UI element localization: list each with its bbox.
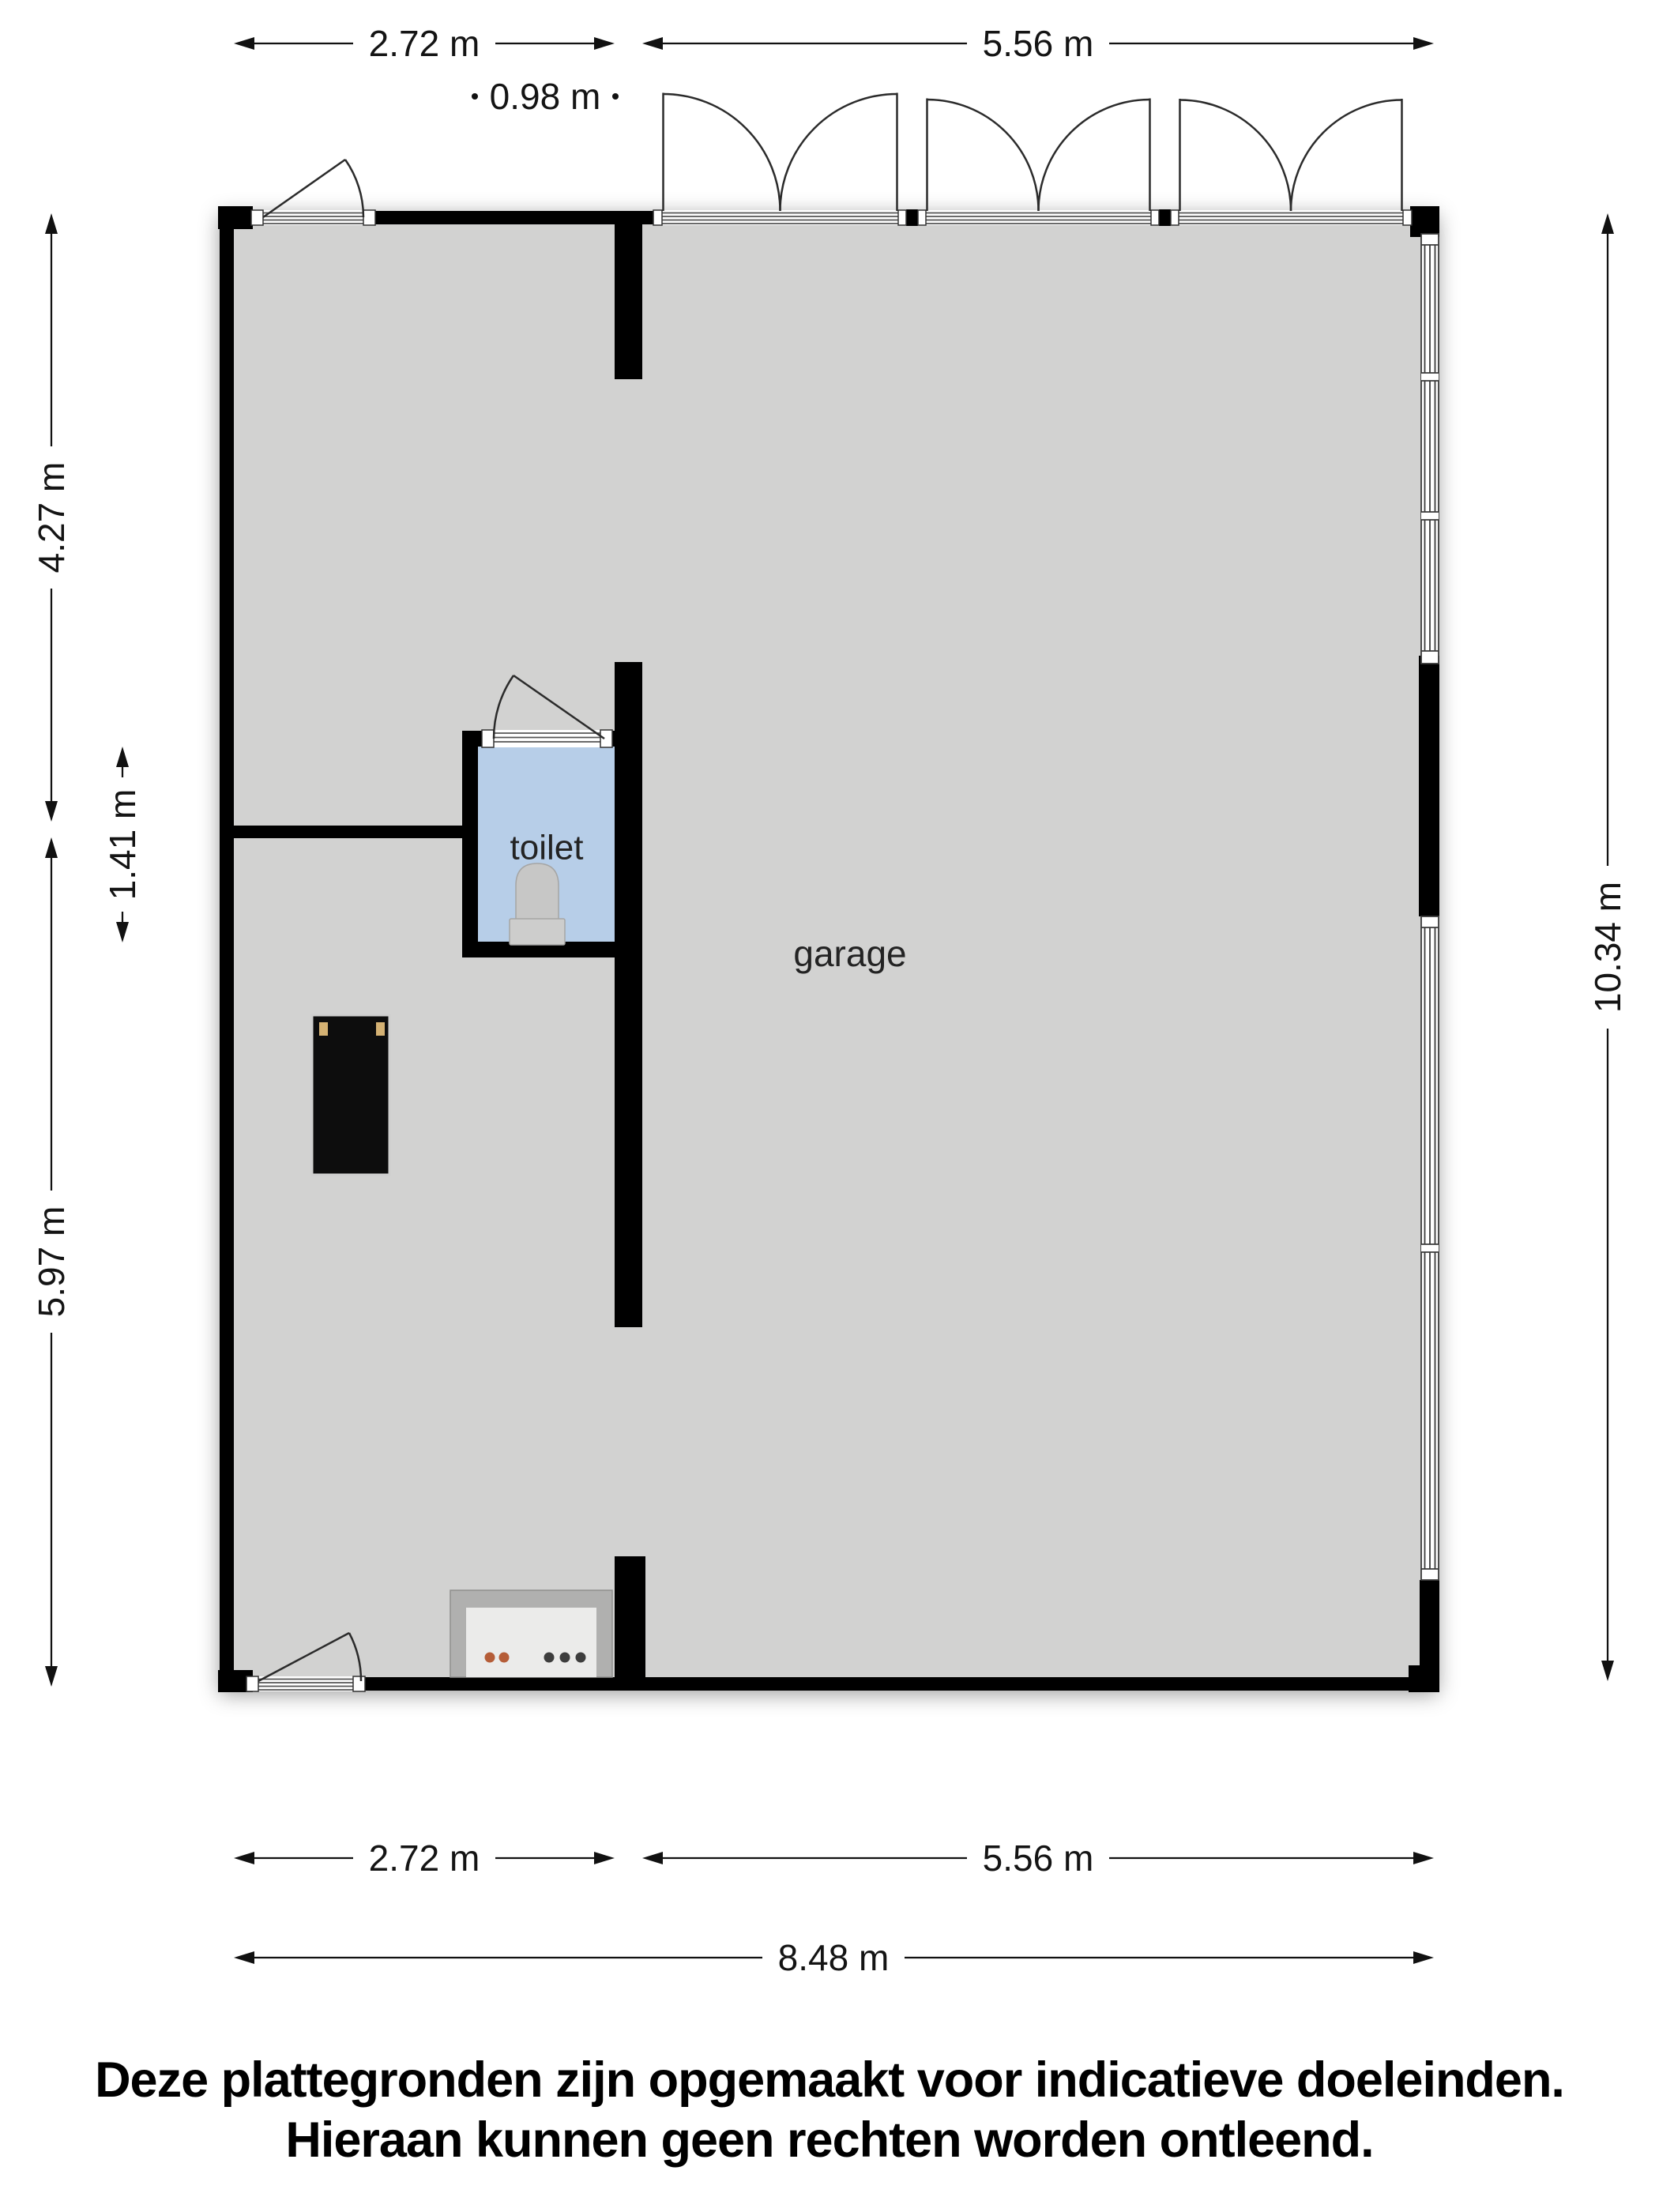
dim-bottom-272: 2.72 m: [234, 1837, 615, 1879]
stove-knob-orange: [499, 1653, 510, 1663]
dim-label: 10.34 m: [1587, 882, 1628, 1013]
floorplan-page: toilet garage 2.72 m 5.56 m 0.98 m: [0, 0, 1659, 2212]
dim-left-427: 4.27 m: [31, 213, 72, 822]
wall-left: [220, 211, 234, 1691]
dim-label: 2.72 m: [369, 1838, 480, 1879]
room-label-garage: garage: [793, 933, 906, 974]
dim-label: 2.72 m: [369, 23, 480, 64]
corner-top-right: [1410, 206, 1439, 237]
dim-label: 4.27 m: [31, 462, 72, 574]
dim-top-556: 5.56 m: [642, 22, 1434, 65]
wall-bottom: [220, 1677, 1438, 1691]
door-toilet: [482, 730, 612, 747]
garage-door-post: [906, 209, 918, 226]
dim-bottom-556: 5.56 m: [642, 1837, 1434, 1879]
window-mullion: [1421, 1244, 1439, 1252]
stove-knob-orange: [485, 1653, 495, 1663]
window-right-upper: [1421, 234, 1439, 664]
cabinet-handle: [376, 1022, 385, 1036]
wall-center-middle: [615, 662, 642, 1327]
dim-label: 8.48 m: [778, 1937, 890, 1978]
wall-divider-horizontal: [234, 826, 462, 838]
window-right-lower: [1421, 916, 1439, 1580]
wall-right-solid-bottom: [1420, 1580, 1439, 1677]
room-label-toilet: toilet: [510, 828, 584, 867]
dim-label: 5.56 m: [983, 1838, 1094, 1879]
door-swing-icon-garage-3: [1180, 99, 1402, 211]
dim-left-597: 5.97 m: [31, 837, 72, 1687]
dim-label: 5.97 m: [31, 1206, 72, 1318]
dim-bottom-848: 8.48 m: [234, 1936, 1434, 1979]
corner-top-left: [218, 206, 253, 229]
dim-top-098: 0.98 m: [472, 76, 619, 117]
stove-knob-dark: [576, 1653, 586, 1663]
dim-label: 1.41 m: [102, 789, 143, 901]
wall-center-stub-bottom: [615, 1556, 645, 1677]
floorplan-canvas: toilet garage 2.72 m 5.56 m 0.98 m: [0, 0, 1659, 2212]
disclaimer-text: Deze plattegronden zijn opgemaakt voor i…: [0, 2051, 1659, 2170]
dim-label: 0.98 m: [490, 76, 601, 117]
door-swing-icon-garage-1: [664, 93, 897, 212]
disclaimer-line-2: Hieraan kunnen geen rechten worden ontle…: [0, 2111, 1659, 2171]
stove-knob-dark: [544, 1653, 555, 1663]
disclaimer-line-1: Deze plattegronden zijn opgemaakt voor i…: [0, 2051, 1659, 2111]
garage-door-openings: [653, 209, 1412, 226]
wall-center-stub-top: [615, 211, 642, 379]
dim-right-1034: 10.34 m: [1586, 213, 1629, 1681]
stove-knob-dark: [560, 1653, 570, 1663]
cabinet: [312, 1015, 389, 1175]
door-swing-icon-top-left: [263, 160, 363, 217]
dim-label: 5.56 m: [983, 23, 1094, 64]
dim-top-272: 2.72 m: [234, 22, 615, 65]
toilet-fixture-icon: [510, 863, 565, 945]
wall-right-solid-middle: [1419, 656, 1439, 916]
cabinet-handle: [319, 1022, 328, 1036]
dim-left-141: 1.41 m: [102, 747, 143, 942]
door-swing-icon-garage-2: [927, 99, 1150, 212]
garage-door-post: [1159, 209, 1171, 226]
workbench-stove: [450, 1590, 612, 1677]
toilet-wall-left: [462, 731, 478, 957]
